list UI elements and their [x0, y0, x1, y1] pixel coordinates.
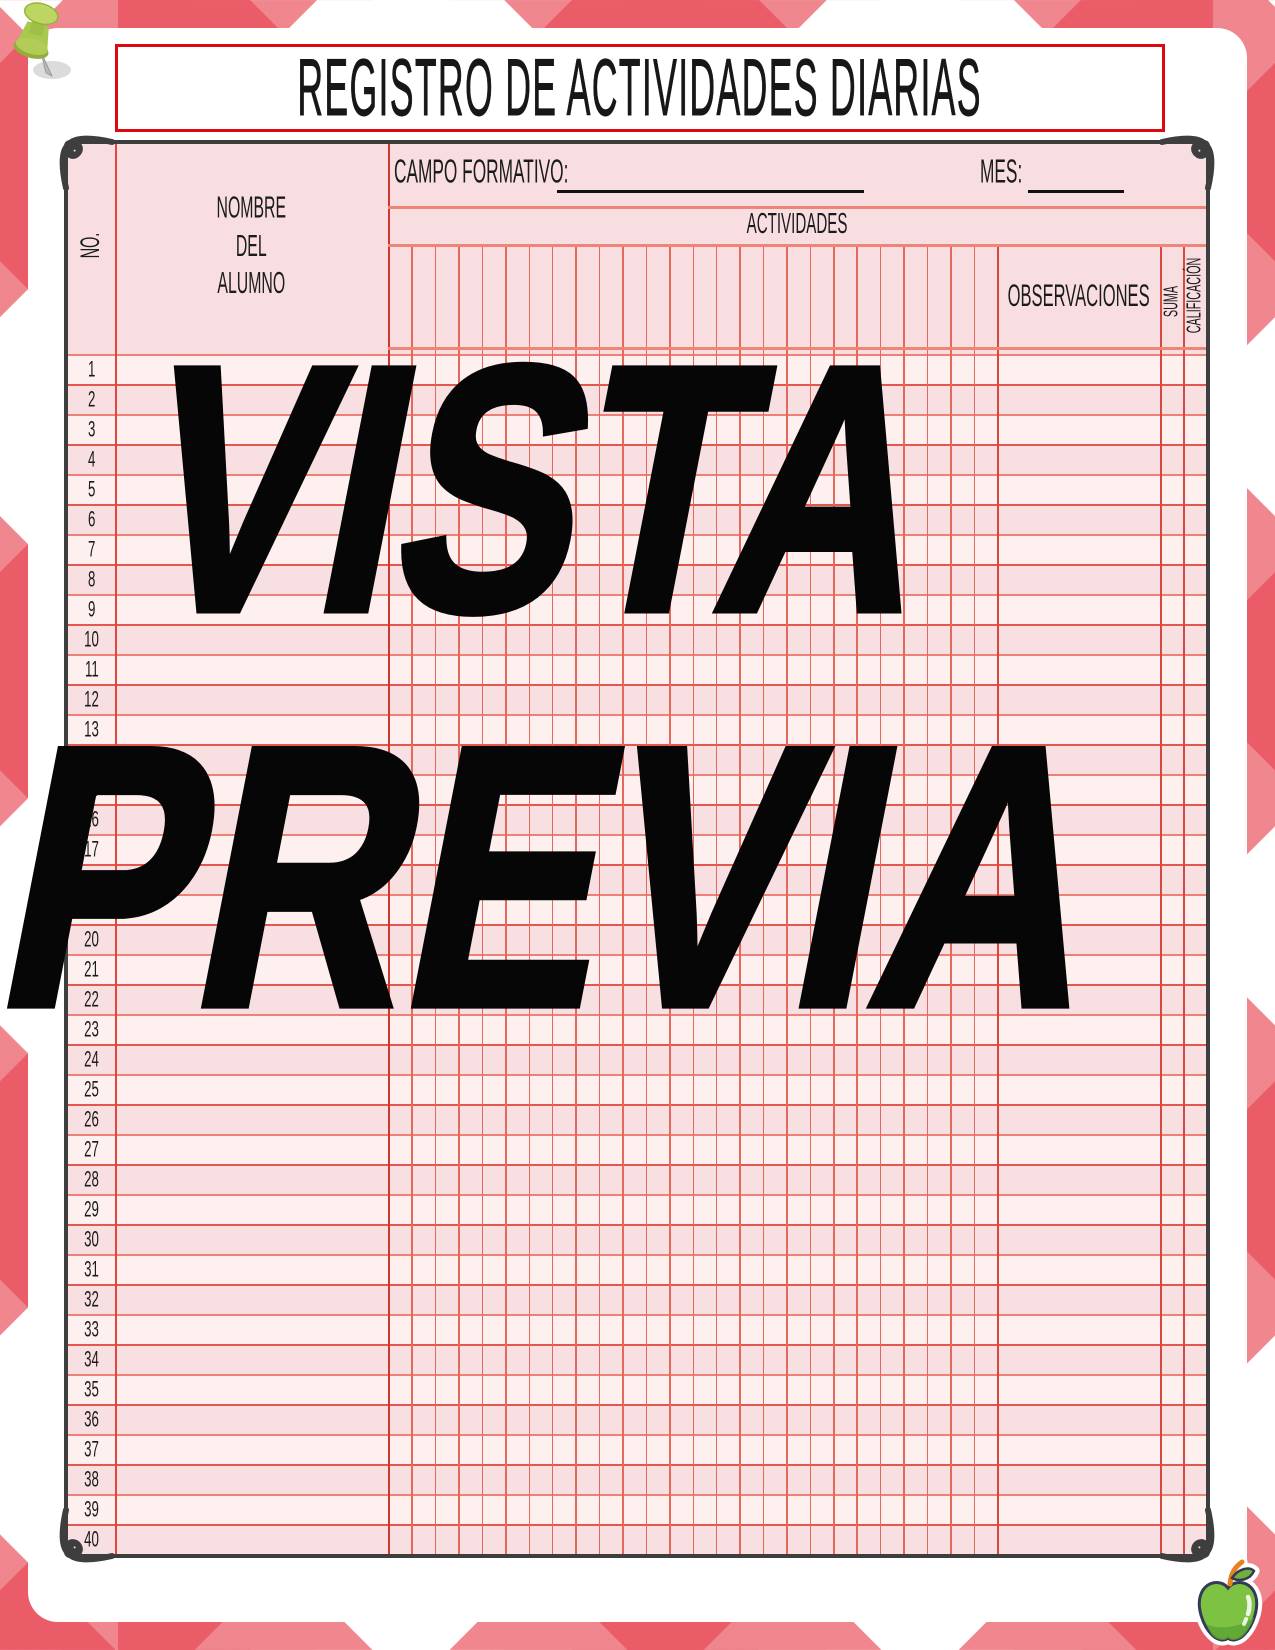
row-number: 4 — [88, 446, 95, 474]
row-number: 35 — [84, 1376, 99, 1404]
table-row: 26 — [68, 1104, 1206, 1134]
table-row: 28 — [68, 1164, 1206, 1194]
row-number: 29 — [84, 1196, 99, 1224]
row-number: 38 — [84, 1466, 99, 1494]
no-label: NO. — [76, 233, 107, 259]
row-number: 34 — [84, 1346, 99, 1374]
row-number: 7 — [88, 536, 95, 564]
campo-formativo-label: CAMPO FORMATIVO: — [394, 152, 568, 193]
apple-icon — [1188, 1554, 1270, 1650]
table-row: 30 — [68, 1224, 1206, 1254]
mes-blank-line — [1028, 190, 1124, 193]
table-row: 33 — [68, 1314, 1206, 1344]
table-row: 27 — [68, 1134, 1206, 1164]
calificacion-header: CALIFICACIÓN — [1183, 244, 1206, 347]
mes-label: MES: — [980, 152, 1022, 193]
corner-flourish-icon — [1160, 132, 1218, 190]
row-number: 8 — [88, 566, 95, 594]
calificacion-label: CALIFICACIÓN — [1183, 258, 1206, 334]
table-row: 38 — [68, 1464, 1206, 1494]
calificacion-separator — [1183, 244, 1185, 1554]
observaciones-header: OBSERVACIONES — [997, 244, 1160, 347]
row-number: 2 — [88, 386, 95, 414]
row-number: 3 — [88, 416, 95, 444]
row-number: 10 — [84, 626, 99, 654]
watermark-line-2: PREVIA — [0, 692, 1134, 1063]
actividades-band: ACTIVIDADES — [388, 206, 1206, 244]
table-row: 40 — [68, 1524, 1206, 1554]
table-row: 32 — [68, 1284, 1206, 1314]
campo-formativo-blank-line — [557, 190, 864, 193]
suma-separator — [1160, 244, 1162, 1554]
row-number: 31 — [84, 1256, 99, 1284]
actividades-label: ACTIVIDADES — [747, 207, 848, 243]
row-number: 9 — [88, 596, 95, 624]
watermark-line-1: VISTA — [118, 314, 963, 664]
corner-flourish-icon — [56, 132, 114, 190]
suma-label: SUMA — [1160, 286, 1183, 317]
observaciones-label: OBSERVACIONES — [1007, 276, 1149, 316]
row-number: 32 — [84, 1286, 99, 1314]
corner-flourish-icon — [56, 1508, 114, 1566]
page-title: REGISTRO DE ACTIVIDADES DIARIAS — [298, 42, 983, 135]
table-row: 39 — [68, 1494, 1206, 1524]
student-name-label: NOMBRE DEL ALUMNO — [217, 189, 287, 303]
mes-field: MES: — [980, 144, 1060, 202]
row-number: 30 — [84, 1226, 99, 1254]
row-number: 6 — [88, 506, 95, 534]
row-number: 37 — [84, 1436, 99, 1464]
table-row: 37 — [68, 1434, 1206, 1464]
row-number: 26 — [84, 1106, 99, 1134]
row-number: 33 — [84, 1316, 99, 1344]
table-row: 35 — [68, 1374, 1206, 1404]
table-row: 36 — [68, 1404, 1206, 1434]
row-number: 1 — [88, 356, 95, 384]
worksheet-preview: REGISTRO DE ACTIVIDADES DIARIAS 12345678… — [0, 0, 1275, 1650]
table-row: 29 — [68, 1194, 1206, 1224]
row-number: 5 — [88, 476, 95, 504]
row-number: 27 — [84, 1136, 99, 1164]
row-number: 36 — [84, 1406, 99, 1434]
pushpin-icon — [8, 0, 78, 92]
table-row: 31 — [68, 1254, 1206, 1284]
row-number: 28 — [84, 1166, 99, 1194]
table-row: 34 — [68, 1344, 1206, 1374]
suma-header: SUMA — [1160, 256, 1183, 347]
title-banner: REGISTRO DE ACTIVIDADES DIARIAS — [115, 44, 1165, 132]
campo-formativo-field: CAMPO FORMATIVO: — [394, 144, 644, 202]
